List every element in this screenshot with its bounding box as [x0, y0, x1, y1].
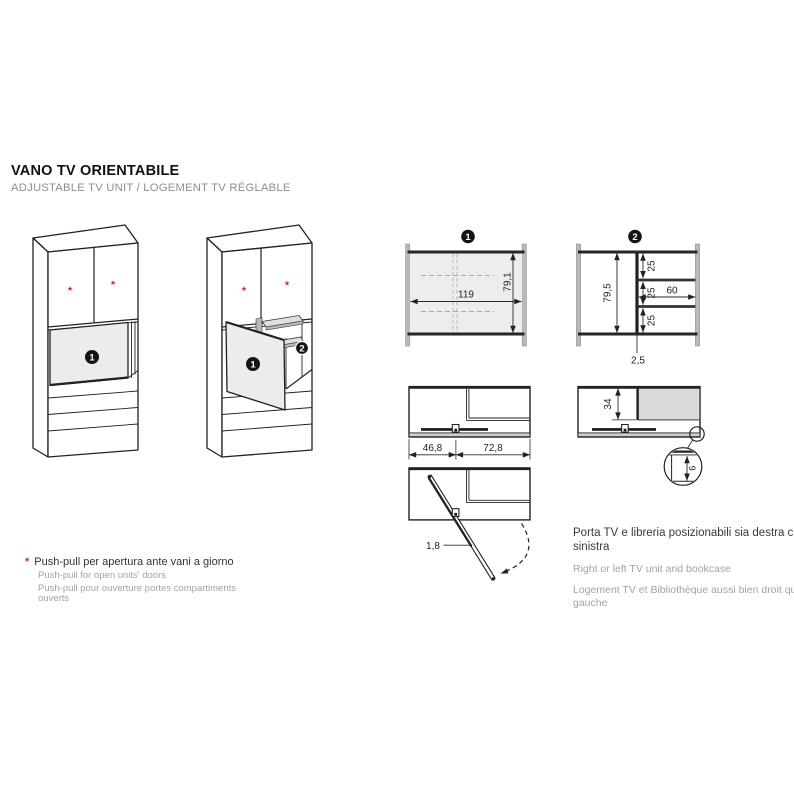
push-pull-star-icon: ★ — [241, 285, 247, 293]
dim-divider-thickness: 2,5 — [631, 356, 645, 367]
plan-view-drawing: 46,8 72,8 — [409, 387, 530, 460]
badge-1-icon: 1 — [85, 350, 99, 364]
positioning-note: Porta TV e libreria posizionabili sia de… — [573, 526, 794, 610]
shaded-tv-area — [638, 388, 700, 420]
svg-text:1: 1 — [250, 360, 256, 371]
dim-inner-width: 119 — [458, 290, 474, 301]
side-view-drawing: 34 6 — [578, 387, 704, 486]
technical-drawings: ★ ★ 1 ★ ★ — [0, 0, 794, 794]
push-pull-star-icon: ★ — [67, 285, 73, 293]
note-italian: Porta TV e libreria posizionabili sia de… — [573, 526, 794, 554]
dim-panel-thickness: 1,8 — [426, 541, 440, 552]
dim-inner-height: 79,1 — [503, 272, 514, 292]
catalog-page: VANO TV ORIENTABILE ADJUSTABLE TV UNIT /… — [0, 0, 794, 794]
swivel-view-drawing: 1,8 — [409, 468, 530, 581]
footnote-star-icon: * — [25, 556, 29, 569]
dimension-diagram-2: 2 79,5 25 25 25 60 2,5 — [576, 230, 699, 367]
svg-text:1: 1 — [465, 232, 471, 243]
note-english: Right or left TV unit and bookcase — [573, 563, 794, 575]
footnote-french: Push-pull pour ouverture portes comparti… — [38, 584, 238, 605]
badge-2-icon: 2 — [628, 230, 642, 244]
dim-cell-top: 25 — [647, 260, 658, 272]
dim-left-height: 79,5 — [603, 283, 614, 303]
push-pull-footnote: * Push-pull per apertura ante vani a gio… — [25, 556, 240, 605]
svg-text:2: 2 — [632, 232, 637, 243]
badge-1-icon: 1 — [246, 357, 260, 371]
note-french: Logement TV et Bibliothèque aussi bien d… — [573, 584, 794, 610]
push-pull-star-icon: ★ — [284, 280, 290, 288]
svg-text:2: 2 — [299, 344, 304, 355]
badge-1-icon: 1 — [461, 230, 475, 244]
svg-text:1: 1 — [89, 353, 95, 364]
dim-edge-gap: 6 — [688, 466, 698, 471]
dim-tv-panel-height: 34 — [603, 398, 614, 410]
rotation-arrow-icon — [501, 524, 529, 574]
cabinet-open-drawing: ★ ★ 1 2 — [207, 225, 312, 457]
push-pull-star-icon: ★ — [110, 279, 116, 287]
footnote-english: Push-pull for open units' doors — [38, 571, 240, 582]
footnote-italian: Push-pull per apertura ante vani a giorn… — [34, 556, 233, 569]
dim-cell-bottom: 25 — [647, 315, 658, 327]
badge-2-icon: 2 — [296, 342, 309, 355]
dim-shelf-width: 60 — [666, 286, 678, 297]
dim-bookcase-width: 72,8 — [483, 443, 503, 454]
dimension-diagram-1: 1 119 79,1 — [406, 230, 527, 346]
cabinet-closed-drawing: ★ ★ 1 — [33, 225, 138, 457]
dim-tv-bay-width: 46,8 — [423, 443, 443, 454]
